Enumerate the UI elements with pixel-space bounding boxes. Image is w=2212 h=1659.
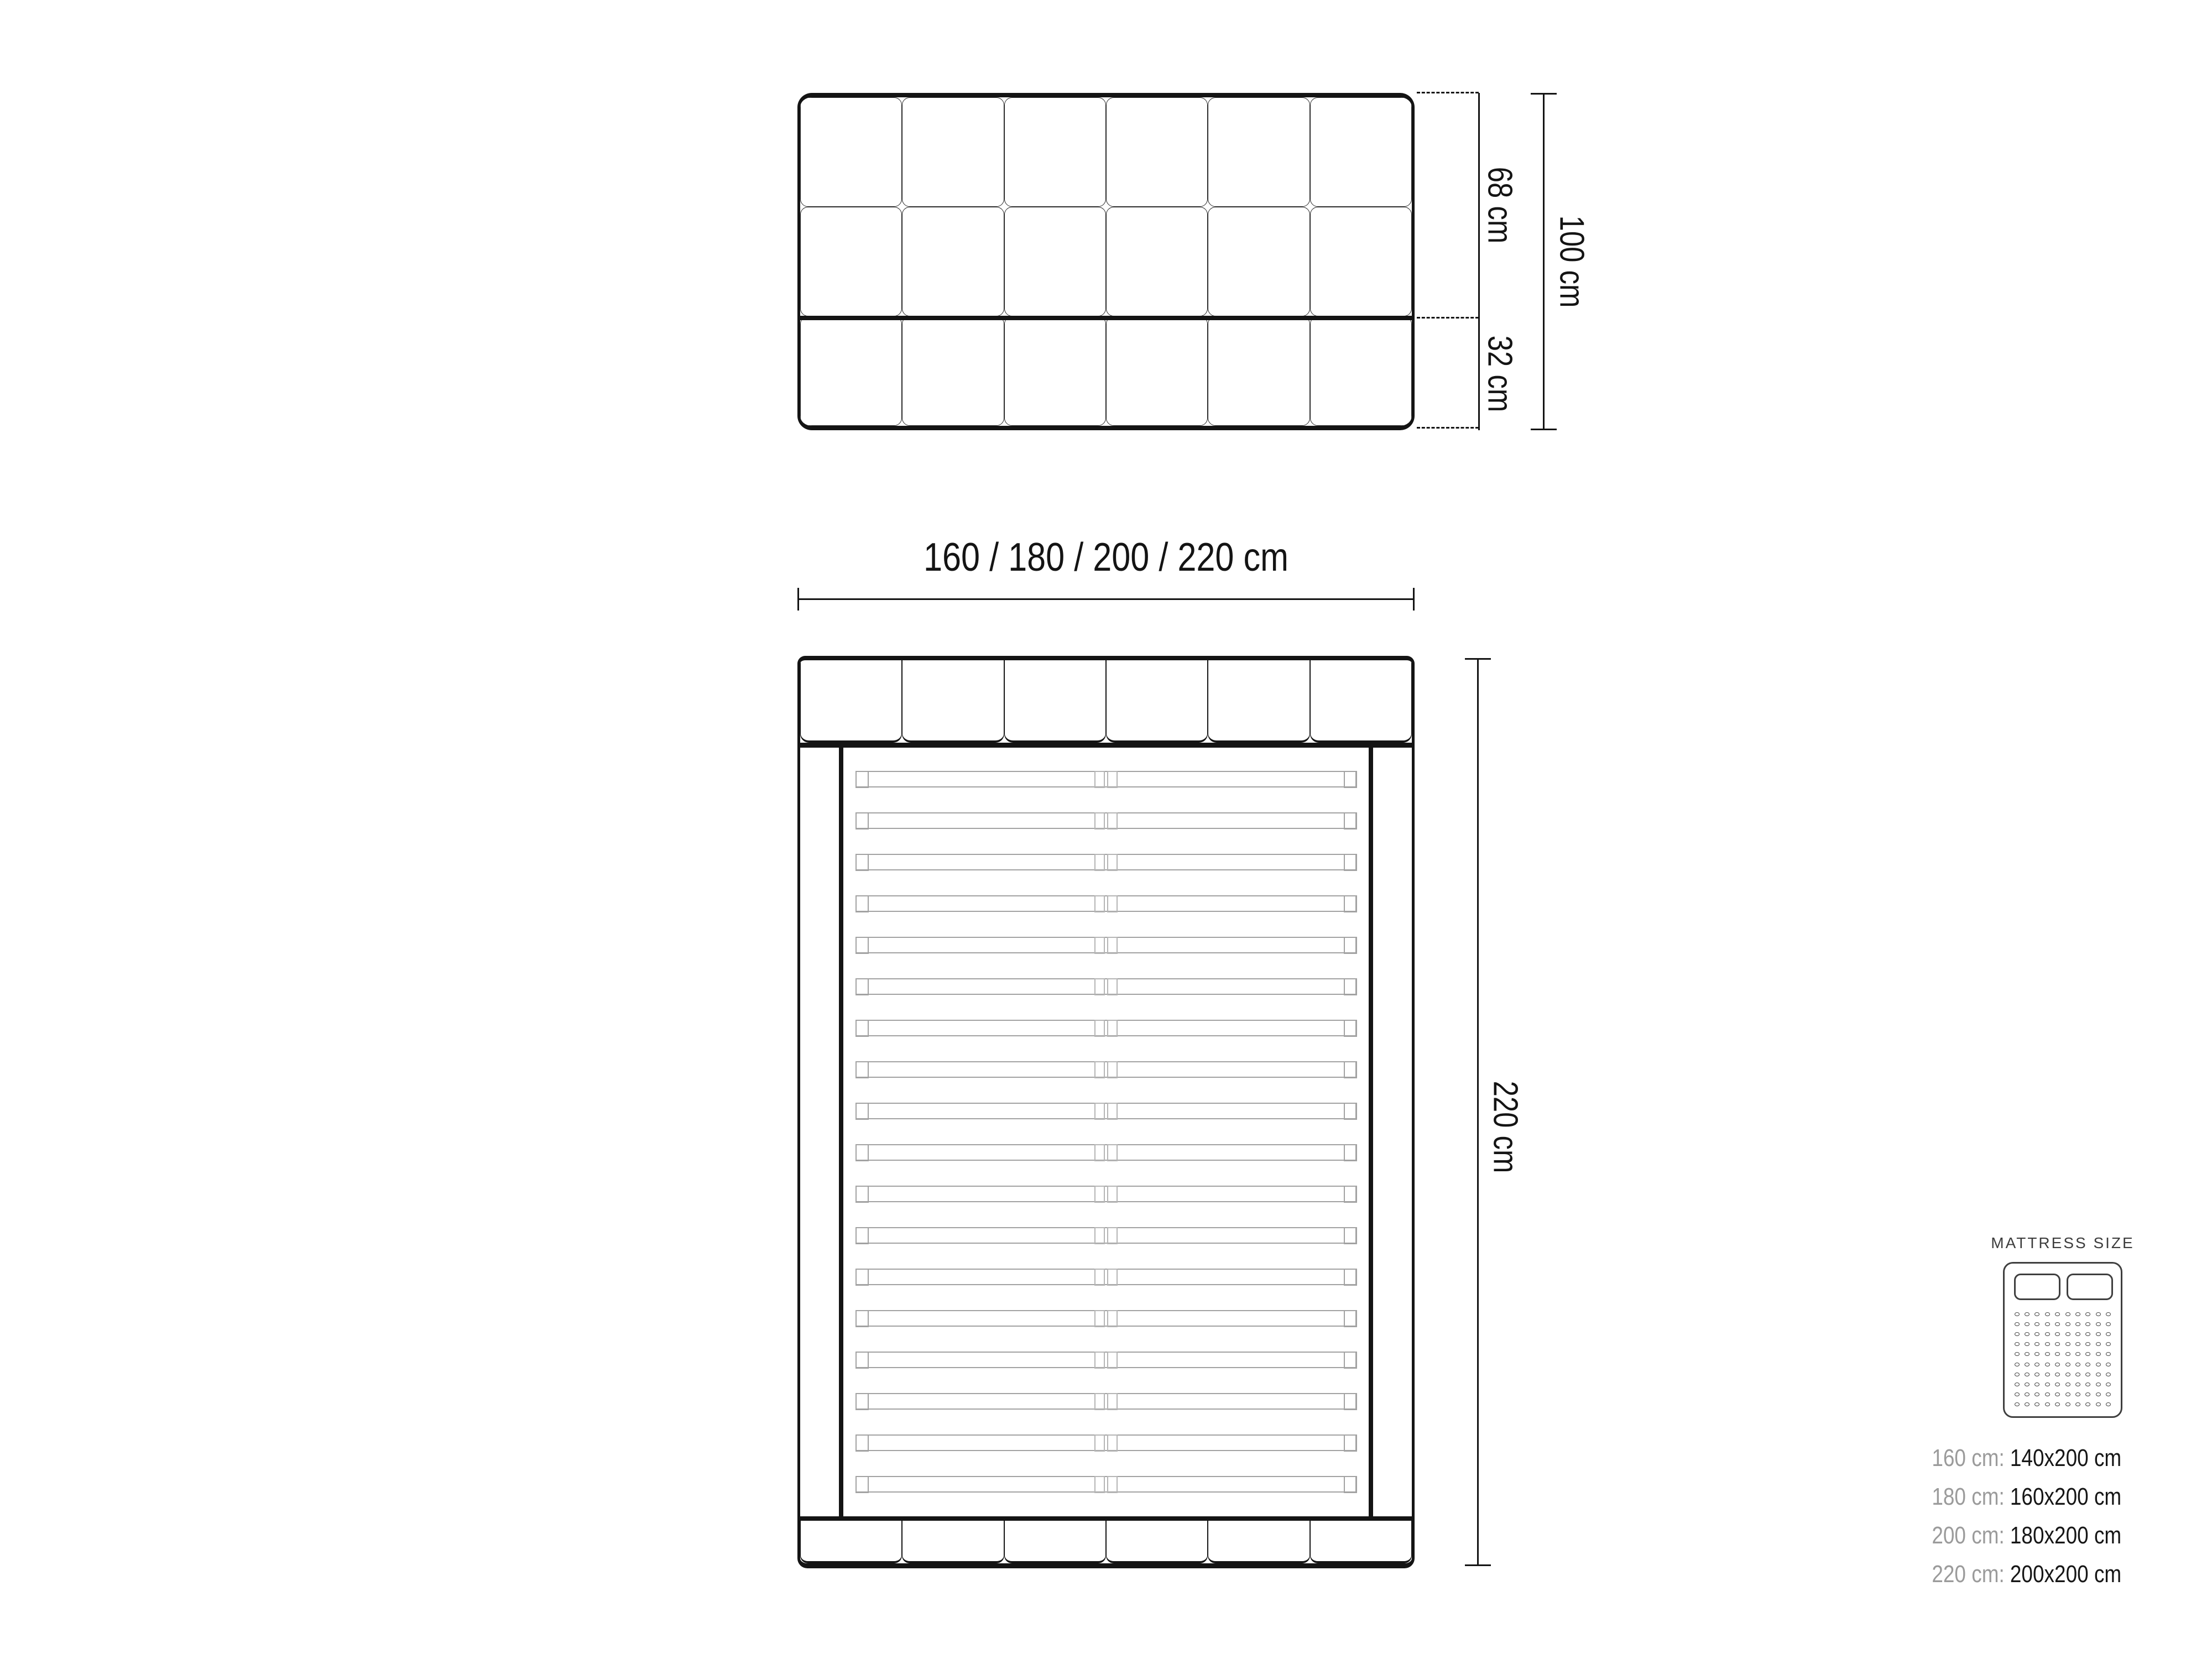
mattress-dot <box>2065 1322 2070 1326</box>
headboard-tuft-cell <box>902 316 1004 426</box>
slat-end-connector <box>855 1310 869 1327</box>
mattress-dot <box>2034 1402 2039 1406</box>
mattress-dot <box>2034 1392 2039 1396</box>
slat-center-connector <box>1094 812 1105 830</box>
headboard-tuft-cell <box>1004 97 1106 207</box>
mattress-dot <box>2106 1342 2111 1346</box>
mattress-dot <box>2106 1322 2111 1326</box>
slat-center-connector <box>1094 1186 1105 1203</box>
slat-end-connector <box>855 937 869 954</box>
bed-slat <box>855 1352 1357 1368</box>
dimension-line-width <box>797 598 1415 600</box>
mattress-size-row: 220 cm:200x200 cm <box>1932 1555 2121 1594</box>
mattress-dot <box>2045 1383 2050 1386</box>
slat-center-connector <box>1094 1020 1105 1037</box>
mattress-size-list: 160 cm:140x200 cm 180 cm:160x200 cm 200 … <box>1896 1439 2121 1594</box>
slat-center-connector <box>1094 1476 1105 1493</box>
slat-center-connector <box>1094 854 1105 871</box>
mattress-dot <box>2085 1402 2090 1406</box>
bed-slat <box>855 1144 1357 1161</box>
projection-dash-bottom <box>1417 427 1479 429</box>
slat-center-connector <box>1107 1186 1118 1203</box>
mattress-dot <box>2075 1352 2080 1356</box>
mattress-dot <box>2055 1322 2060 1326</box>
bed-slat <box>855 978 1357 995</box>
mattress-size-value: 140x200 cm <box>2010 1444 2121 1472</box>
mattress-level-line <box>797 316 1415 320</box>
headboard-tuft-cell <box>800 97 902 207</box>
mattress-dot <box>2085 1342 2090 1346</box>
mattress-dot <box>2025 1312 2030 1316</box>
mattress-dot <box>2075 1322 2080 1326</box>
slat-end-connector <box>855 1434 869 1452</box>
headboard-tuft-cell <box>1310 97 1412 207</box>
bed-width-label: 220 cm: <box>1932 1561 2004 1588</box>
slat-end-connector <box>1344 1186 1357 1203</box>
mattress-size-row: 180 cm:160x200 cm <box>1932 1478 2121 1516</box>
mattress-dot <box>2106 1373 2111 1376</box>
slat-end-connector <box>1344 1434 1357 1452</box>
headboard-panel <box>1004 660 1106 743</box>
slat-end-connector <box>1344 895 1357 912</box>
headboard-tuft-cell <box>1106 97 1208 207</box>
mattress-dot <box>2055 1312 2060 1316</box>
mattress-size-value: 200x200 cm <box>2010 1561 2121 1588</box>
mattress-dot <box>2075 1363 2080 1366</box>
headboard-tuft-cell <box>1310 316 1412 426</box>
headboard-tuft-cell <box>1208 207 1310 316</box>
mattress-dot <box>2065 1373 2070 1376</box>
slat-end-connector <box>855 1144 869 1161</box>
mattress-size-title: MATTRESS SIZE <box>1958 1234 2168 1252</box>
slat-center-connector <box>1107 1061 1118 1078</box>
mattress-dot <box>2015 1322 2020 1326</box>
bed-slat <box>855 895 1357 912</box>
mattress-size-value: 160x200 cm <box>2010 1483 2121 1510</box>
mattress-dot <box>2096 1352 2101 1356</box>
mattress-dot <box>2085 1383 2090 1386</box>
slat-center-connector <box>1094 1144 1105 1161</box>
label-total-height: 100 cm <box>1552 216 1592 308</box>
slat-center-connector <box>1107 895 1118 912</box>
mattress-dot <box>2085 1363 2090 1366</box>
mattress-dot <box>2096 1342 2101 1346</box>
slat-end-connector <box>855 1393 869 1410</box>
mattress-dot <box>2015 1373 2020 1376</box>
slat-center-connector <box>1094 1393 1105 1410</box>
mattress-dot <box>2106 1402 2111 1406</box>
slat-area <box>855 748 1357 1516</box>
slat-end-connector <box>1344 937 1357 954</box>
slat-end-connector <box>855 1103 869 1120</box>
slat-center-connector <box>1094 1310 1105 1327</box>
mattress-dot <box>2065 1392 2070 1396</box>
dimension-cap <box>1531 429 1557 430</box>
headboard-front-view <box>797 93 1415 430</box>
mattress-dot <box>2025 1383 2030 1386</box>
mattress-dot <box>2055 1383 2060 1386</box>
slat-end-connector <box>1344 812 1357 830</box>
mattress-dot <box>2034 1332 2039 1336</box>
label-width-options: 160 / 180 / 200 / 220 cm <box>924 535 1288 580</box>
label-upper-height: 68 cm <box>1480 167 1520 243</box>
slat-center-connector <box>1107 1020 1118 1037</box>
footboard-top-view-band <box>797 1516 1415 1568</box>
mattress-dot <box>2015 1352 2020 1356</box>
mattress-dot <box>2065 1332 2070 1336</box>
mattress-dot <box>2075 1402 2080 1406</box>
mattress-dot <box>2085 1352 2090 1356</box>
slat-center-connector <box>1107 1352 1118 1369</box>
bed-frame-body <box>797 748 1415 1516</box>
mattress-dot <box>2025 1363 2030 1366</box>
bed-slat <box>855 1269 1357 1285</box>
mattress-dot <box>2045 1373 2050 1376</box>
projection-dash-top <box>1417 92 1479 93</box>
slat-center-connector <box>1107 1269 1118 1286</box>
slat-end-connector <box>1344 1061 1357 1078</box>
headboard-tuft-cell <box>902 97 1004 207</box>
pillow-icon <box>2067 1274 2113 1300</box>
slat-center-connector <box>1107 1434 1118 1452</box>
slat-center-connector <box>1107 771 1118 788</box>
mattress-dot <box>2015 1312 2020 1316</box>
bed-slat <box>855 1393 1357 1410</box>
bed-dimension-diagram-page: { "diagram": { "headboard_front": { "col… <box>0 0 2212 1659</box>
mattress-dot <box>2025 1402 2030 1406</box>
mattress-dot <box>2015 1392 2020 1396</box>
slat-center-connector <box>1094 1061 1105 1078</box>
bed-slat <box>855 1186 1357 1202</box>
headboard-panel <box>902 660 1004 743</box>
slat-end-connector <box>1344 978 1357 995</box>
mattress-dot <box>2075 1392 2080 1396</box>
slat-center-connector <box>1094 937 1105 954</box>
mattress-dot <box>2096 1373 2101 1376</box>
mattress-dot <box>2034 1352 2039 1356</box>
mattress-dot <box>2065 1352 2070 1356</box>
mattress-dot <box>2034 1383 2039 1386</box>
dimension-cap <box>1413 588 1415 611</box>
headboard-top-view-band <box>797 656 1415 748</box>
bed-slat <box>855 1310 1357 1327</box>
mattress-dot <box>2045 1342 2050 1346</box>
slat-center-connector <box>1094 1352 1105 1369</box>
footboard-panel <box>1208 1521 1310 1563</box>
label-length: 220 cm <box>1486 1081 1525 1173</box>
bed-width-label: 160 cm: <box>1932 1444 2004 1472</box>
headboard-tuft-cell <box>1310 207 1412 316</box>
bed-slat <box>855 771 1357 787</box>
mattress-size-row: 200 cm:180x200 cm <box>1932 1516 2121 1555</box>
bed-slat <box>855 937 1357 953</box>
mattress-dot <box>2045 1352 2050 1356</box>
dimension-cap <box>1465 658 1491 660</box>
dimension-cap <box>797 588 799 611</box>
slat-end-connector <box>1344 1020 1357 1037</box>
label-lower-height: 32 cm <box>1480 336 1520 412</box>
headboard-panel <box>800 660 902 743</box>
headboard-tuft-cell <box>1208 97 1310 207</box>
slat-center-connector <box>1094 978 1105 995</box>
dimension-line-length <box>1477 658 1479 1566</box>
mattress-dot <box>2085 1332 2090 1336</box>
mattress-dot <box>2096 1332 2101 1336</box>
footboard-panel <box>1310 1521 1412 1563</box>
mattress-dot <box>2045 1332 2050 1336</box>
headboard-tuft-cell <box>1004 316 1106 426</box>
mattress-dot <box>2096 1312 2101 1316</box>
mattress-dot <box>2085 1312 2090 1316</box>
slat-end-connector <box>855 1020 869 1037</box>
bed-slat <box>855 1434 1357 1451</box>
mattress-dot <box>2075 1332 2080 1336</box>
mattress-dot <box>2096 1383 2101 1386</box>
mattress-dot <box>2075 1383 2080 1386</box>
footboard-panel <box>800 1521 902 1563</box>
headboard-tuft-cell <box>902 207 1004 316</box>
mattress-dot <box>2034 1373 2039 1376</box>
mattress-dot <box>2075 1312 2080 1316</box>
slat-end-connector <box>1344 1103 1357 1120</box>
slat-end-connector <box>1344 1144 1357 1161</box>
side-rail-left <box>839 748 843 1516</box>
mattress-dot <box>2055 1332 2060 1336</box>
mattress-dot <box>2055 1352 2060 1356</box>
mattress-dot <box>2015 1383 2020 1386</box>
slat-end-connector <box>1344 1269 1357 1286</box>
headboard-panel <box>1106 660 1208 743</box>
pillow-icon <box>2014 1274 2060 1300</box>
mattress-dot <box>2106 1392 2111 1396</box>
bed-width-label: 180 cm: <box>1932 1483 2004 1510</box>
mattress-dot <box>2106 1352 2111 1356</box>
mattress-icon <box>2003 1262 2122 1418</box>
bed-slat <box>855 1103 1357 1119</box>
slat-end-connector <box>855 1186 869 1203</box>
mattress-dot <box>2065 1402 2070 1406</box>
mattress-dot <box>2055 1402 2060 1406</box>
mattress-dot <box>2085 1373 2090 1376</box>
slat-center-connector <box>1107 1227 1118 1244</box>
headboard-panel <box>1208 660 1310 743</box>
headboard-tuft-cell <box>800 207 902 316</box>
mattress-dot <box>2015 1402 2020 1406</box>
mattress-dot <box>2075 1342 2080 1346</box>
mattress-dot <box>2096 1392 2101 1396</box>
mattress-dot <box>2055 1363 2060 1366</box>
footboard-panel <box>1004 1521 1106 1563</box>
slat-center-connector <box>1107 1393 1118 1410</box>
mattress-dot <box>2025 1342 2030 1346</box>
mattress-dot <box>2045 1312 2050 1316</box>
slat-center-connector <box>1094 1269 1105 1286</box>
mattress-dot <box>2096 1322 2101 1326</box>
mattress-dot <box>2075 1373 2080 1376</box>
slat-center-connector <box>1094 895 1105 912</box>
mattress-dot <box>2045 1392 2050 1396</box>
footboard-panel <box>902 1521 1004 1563</box>
mattress-dot <box>2015 1363 2020 1366</box>
slat-end-connector <box>1344 854 1357 871</box>
slat-end-connector <box>1344 1227 1357 1244</box>
mattress-dot <box>2034 1312 2039 1316</box>
slat-end-connector <box>855 1269 869 1286</box>
mattress-dot <box>2015 1332 2020 1336</box>
headboard-tuft-cell <box>1106 207 1208 316</box>
mattress-size-row: 160 cm:140x200 cm <box>1932 1439 2121 1478</box>
mattress-dot <box>2085 1392 2090 1396</box>
dimension-cap <box>1465 1564 1491 1566</box>
slat-center-connector <box>1107 1144 1118 1161</box>
bed-slat <box>855 1020 1357 1036</box>
mattress-dot <box>2106 1383 2111 1386</box>
mattress-dot <box>2065 1363 2070 1366</box>
slat-center-connector <box>1094 1434 1105 1452</box>
bed-slat <box>855 812 1357 829</box>
slat-center-connector <box>1107 1476 1118 1493</box>
mattress-dot <box>2025 1332 2030 1336</box>
slat-end-connector <box>855 1061 869 1078</box>
headboard-tuft-cell <box>800 316 902 426</box>
mattress-dot <box>2025 1392 2030 1396</box>
bed-slat <box>855 1476 1357 1493</box>
slat-end-connector <box>855 812 869 830</box>
mattress-dot <box>2096 1363 2101 1366</box>
slat-end-connector <box>1344 771 1357 788</box>
mattress-dot <box>2106 1332 2111 1336</box>
slat-end-connector <box>855 771 869 788</box>
mattress-dot <box>2106 1312 2111 1316</box>
mattress-dot <box>2025 1352 2030 1356</box>
headboard-tuft-cell <box>1004 207 1106 316</box>
slat-center-connector <box>1094 1103 1105 1120</box>
mattress-dot <box>2085 1322 2090 1326</box>
slat-end-connector <box>1344 1352 1357 1369</box>
slat-end-connector <box>855 978 869 995</box>
slat-end-connector <box>855 1227 869 1244</box>
mattress-dot <box>2025 1373 2030 1376</box>
mattress-dot <box>2106 1363 2111 1366</box>
mattress-dot <box>2065 1342 2070 1346</box>
slat-end-connector <box>1344 1476 1357 1493</box>
slat-center-connector <box>1107 937 1118 954</box>
mattress-dot <box>2045 1363 2050 1366</box>
mattress-dot <box>2055 1392 2060 1396</box>
dimension-line-100 <box>1543 93 1545 430</box>
mattress-dot <box>2025 1322 2030 1326</box>
mattress-dot <box>2096 1402 2101 1406</box>
mattress-size-value: 180x200 cm <box>2010 1522 2121 1549</box>
slat-center-connector <box>1107 854 1118 871</box>
headboard-tuft-cell <box>1208 316 1310 426</box>
slat-center-connector <box>1094 771 1105 788</box>
headboard-panel <box>1310 660 1412 743</box>
slat-end-connector <box>855 854 869 871</box>
bed-slat <box>855 854 1357 870</box>
slat-end-connector <box>1344 1393 1357 1410</box>
slat-end-connector <box>855 1352 869 1369</box>
slat-end-connector <box>1344 1310 1357 1327</box>
mattress-dot <box>2045 1402 2050 1406</box>
mattress-dot <box>2034 1342 2039 1346</box>
mattress-dot <box>2055 1342 2060 1346</box>
mattress-dot <box>2055 1373 2060 1376</box>
mattress-dot <box>2065 1383 2070 1386</box>
slat-center-connector <box>1107 978 1118 995</box>
mattress-dot <box>2034 1322 2039 1326</box>
slat-center-connector <box>1107 812 1118 830</box>
dimension-cap <box>1531 93 1557 95</box>
projection-dash-mattress <box>1417 317 1479 319</box>
bed-width-label: 200 cm: <box>1932 1522 2004 1549</box>
bed-slat <box>855 1061 1357 1078</box>
mattress-dot <box>2034 1363 2039 1366</box>
slat-center-connector <box>1107 1103 1118 1120</box>
slat-end-connector <box>855 1476 869 1493</box>
mattress-dot <box>2045 1322 2050 1326</box>
headboard-tuft-cell <box>1106 316 1208 426</box>
slat-center-connector <box>1094 1227 1105 1244</box>
bed-slat <box>855 1227 1357 1244</box>
side-rail-right <box>1369 748 1373 1516</box>
slat-end-connector <box>855 895 869 912</box>
mattress-dot <box>2015 1342 2020 1346</box>
mattress-dot <box>2065 1312 2070 1316</box>
mattress-dot-grid <box>2012 1309 2114 1410</box>
slat-center-connector <box>1107 1310 1118 1327</box>
footboard-panel <box>1106 1521 1208 1563</box>
